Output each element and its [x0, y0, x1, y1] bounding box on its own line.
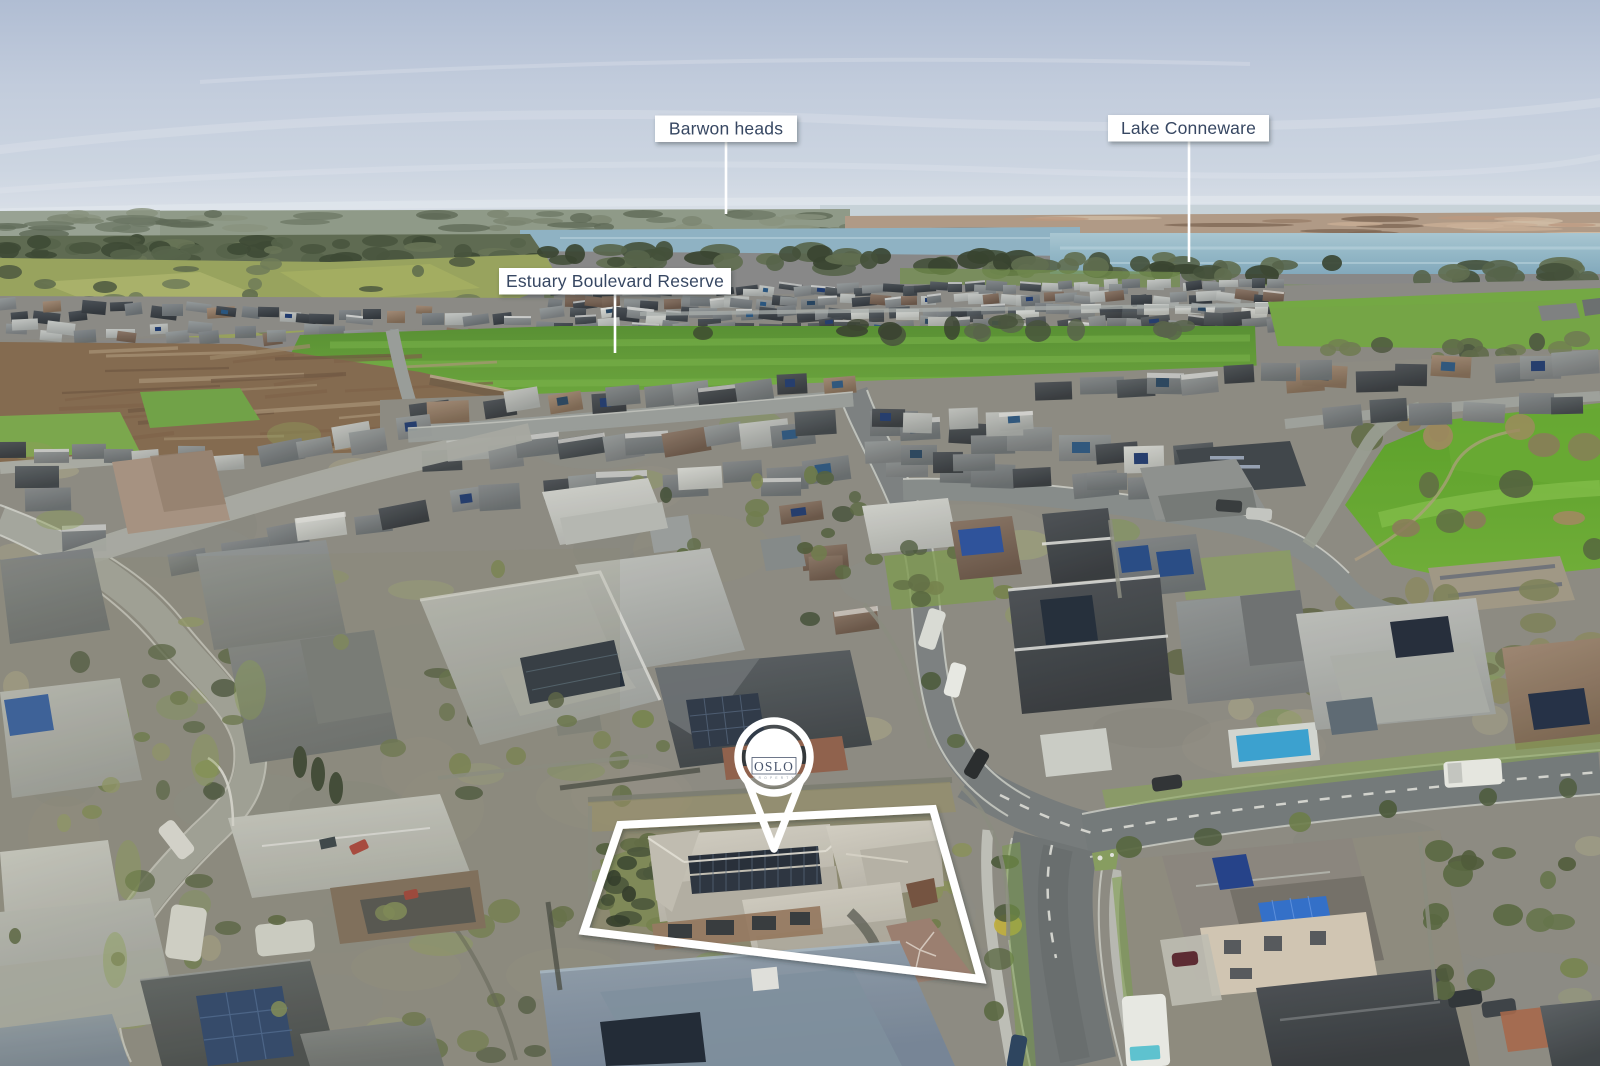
svg-text:Lake Conneware: Lake Conneware [1121, 118, 1256, 138]
svg-text:Barwon heads: Barwon heads [669, 119, 783, 139]
svg-text:OSLO: OSLO [754, 759, 794, 774]
svg-text:P R O P E R T Y: P R O P E R T Y [753, 776, 794, 780]
svg-text:Estuary Boulevard Reserve: Estuary Boulevard Reserve [506, 271, 724, 291]
